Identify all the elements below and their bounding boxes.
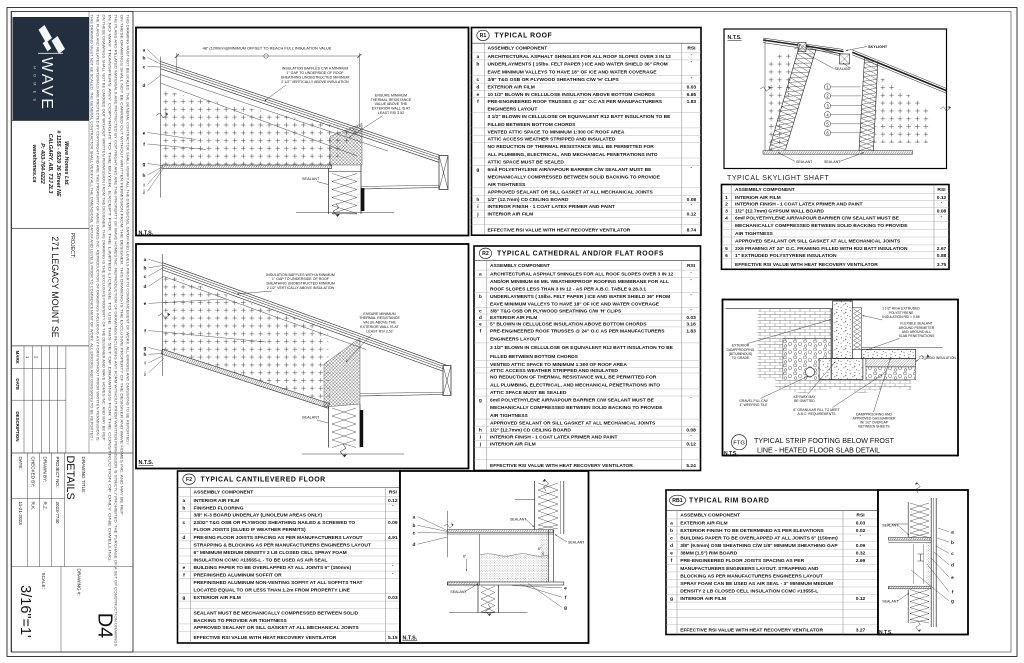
- svg-text:STRAPPING & BLOCKING AS PER MA: STRAPPING & BLOCKING AS PER MANUFACTURER…: [194, 542, 371, 548]
- svg-text:b: b: [143, 55, 146, 61]
- svg-text:MECHANICALLY COMPRESSED BETWEE: MECHANICALLY COMPRESSED BETWEEN SOLID BA…: [488, 174, 661, 180]
- svg-text:e: e: [951, 576, 954, 581]
- svg-text:c: c: [477, 78, 480, 83]
- svg-text:0.12: 0.12: [388, 498, 398, 504]
- svg-text:b: b: [144, 266, 147, 272]
- svg-text:EFFECTIVE RSI VALUE WITH HEAT: EFFECTIVE RSI VALUE WITH HEAT RECOVERY V…: [490, 463, 633, 469]
- svg-text:VALUE ABOVE THE: VALUE ABOVE THE: [375, 102, 408, 106]
- svg-text:SEALANT: SEALANT: [882, 600, 899, 604]
- svg-text:1/2" (12.7mm) CD CEILING BOARD: 1/2" (12.7mm) CD CEILING BOARD: [490, 427, 571, 433]
- svg-text:RSI: RSI: [687, 263, 696, 269]
- svg-text:VENTED ATTIC SPACE TO MINIMUM: VENTED ATTIC SPACE TO MINIMUM 1:300 OF R…: [490, 362, 627, 368]
- svg-text:d: d: [413, 542, 416, 548]
- svg-text:Wave Homes Ltd.: Wave Homes Ltd.: [63, 141, 69, 186]
- svg-text:IN NO WAY TRANSFERS ANY COPYRI: IN NO WAY TRANSFERS ANY COPYRIGHT TO THE…: [108, 15, 112, 563]
- svg-text:BUILDING PAPER TO BE OVERLAPPE: BUILDING PAPER TO BE OVERLAPPED AT ALL J…: [194, 565, 352, 571]
- svg-text:e: e: [143, 131, 146, 136]
- svg-text:0.09: 0.09: [856, 543, 866, 549]
- svg-text:j: j: [143, 371, 145, 377]
- svg-text:3/8" K-3 BOARD UNDERLAY (LINOL: 3/8" K-3 BOARD UNDERLAY (LINOLEUM AREAS …: [194, 513, 323, 519]
- svg-text:APPROVED SEALANT OR SILL GASKE: APPROVED SEALANT OR SILL GASKET AT ALL M…: [488, 189, 654, 195]
- svg-text:EXTERIOR FINISH TO BE DETERMIN: EXTERIOR FINISH TO BE DETERMINED AS PER …: [680, 528, 824, 534]
- svg-text:2: 2: [725, 202, 728, 208]
- svg-text:2.69: 2.69: [856, 558, 866, 564]
- svg-text:e: e: [477, 93, 480, 98]
- svg-text:PRE-ENGINEERED ROOF TRUSSES @: PRE-ENGINEERED ROOF TRUSSES @ 24" O.C AS…: [490, 329, 665, 335]
- svg-text:a: a: [479, 273, 482, 278]
- svg-text:DATE: DATE: [15, 378, 20, 390]
- svg-text:6: 6: [725, 253, 728, 259]
- svg-text:INTERIOR FINISH - 1 COAT LATEX: INTERIOR FINISH - 1 COAT LATEX PRIMER AN…: [735, 202, 863, 208]
- svg-text:c: c: [144, 275, 147, 280]
- svg-text:P: 403-764-0222: P: 403-764-0222: [39, 143, 45, 183]
- svg-text:g: g: [670, 597, 673, 602]
- svg-text:0.88: 0.88: [937, 253, 947, 259]
- svg-text:b: b: [182, 505, 185, 511]
- svg-text:PRE-ENGINEERED ROOF TRUSSES @: PRE-ENGINEERED ROOF TRUSSES @ 24" O.C AS…: [488, 99, 663, 105]
- svg-text:EXTERIOR AIR FILM: EXTERIOR AIR FILM: [488, 85, 535, 91]
- svg-text:g: g: [182, 596, 185, 601]
- svg-text:0.12: 0.12: [856, 596, 866, 602]
- svg-text:THERMAL RESISTANCE: THERMAL RESISTANCE: [359, 316, 400, 320]
- svg-text:j: j: [142, 189, 144, 195]
- svg-text:SKYLIGHT: SKYLIGHT: [868, 45, 888, 49]
- svg-text:wavehomes.ca: wavehomes.ca: [31, 144, 37, 182]
- svg-text:FILLED BETWEEN BOTTOM CHORDS: FILLED BETWEEN BOTTOM CHORDS: [490, 354, 579, 360]
- svg-text:MANUFACTURERS ENGINEERS LAYOUT: MANUFACTURERS ENGINEERS LAYOUT. STRAPPIN…: [680, 566, 819, 572]
- svg-text:DETAILS: DETAILS: [64, 456, 76, 500]
- svg-text:N.T.S.: N.T.S.: [724, 451, 738, 457]
- svg-text:DRAWN BY:: DRAWN BY:: [43, 457, 48, 483]
- svg-text:1.83: 1.83: [686, 329, 696, 335]
- svg-text:EFFECTIVE RSI VALUE WITH HEAT: EFFECTIVE RSI VALUE WITH HEAT RECOVERY V…: [680, 627, 823, 633]
- svg-text:SEALANT: SEALANT: [796, 160, 813, 164]
- svg-text:a: a: [670, 521, 673, 526]
- svg-text:N.T.S.: N.T.S.: [728, 35, 743, 41]
- svg-text:DRAWING TITLE:: DRAWING TITLE:: [81, 457, 86, 494]
- svg-text:i: i: [144, 361, 145, 367]
- svg-text:a: a: [477, 55, 480, 60]
- svg-text:4" WEEPING TILE: 4" WEEPING TILE: [739, 403, 768, 407]
- svg-text:5" BLOWN IN CELLULOSE INSULATI: 5" BLOWN IN CELLULOSE INSULATION ABOVE B…: [490, 321, 647, 327]
- svg-text:RSI: RSI: [687, 46, 696, 52]
- svg-text:INTERIOR FINISH - 1 COAT LATEX: INTERIOR FINISH - 1 COAT LATEX PRIMER AN…: [490, 435, 618, 441]
- svg-text:1" EXTRUDED POLYSTYRENE INSULA: 1" EXTRUDED POLYSTYRENE INSULATION: [735, 253, 837, 259]
- svg-text:DRAWING #:: DRAWING #:: [77, 569, 82, 596]
- svg-text:FINISHED FLOORING: FINISHED FLOORING: [194, 505, 244, 511]
- svg-text:1.83: 1.83: [687, 99, 697, 105]
- svg-text:3 1/2" BLOWN IN CELLULOSE OR E: 3 1/2" BLOWN IN CELLULOSE OR EQUIVALENT …: [488, 114, 672, 120]
- svg-text:INSULATION BAFFLES WITH A MINI: INSULATION BAFFLES WITH A MINIMUM: [266, 273, 335, 277]
- svg-text:6mil POLYETHYLENE AIR/VAPOUR B: 6mil POLYETHYLENE AIR/VAPOUR BARRIER C/W…: [735, 216, 900, 222]
- svg-text:RSI: RSI: [937, 187, 946, 193]
- svg-text:BE OMITTED: BE OMITTED: [794, 399, 815, 403]
- svg-text:R.Z.: R.Z.: [43, 502, 48, 511]
- svg-text:WAVE: WAVE: [38, 57, 55, 111]
- svg-text:EAVE MINIMUM VALLEYS TO HAVE 1: EAVE MINIMUM VALLEYS TO HAVE 18" OF ICE …: [490, 302, 660, 308]
- svg-text:a: a: [144, 258, 147, 263]
- svg-text:A.B.C. REQUIREMENTS: A.B.C. REQUIREMENTS: [797, 412, 836, 416]
- svg-text:LEAST RSI 3.52: LEAST RSI 3.52: [378, 111, 404, 115]
- svg-text:SEALANT: SEALANT: [450, 590, 467, 594]
- svg-text:THIS DRAWING MUST NOT BE SCALE: THIS DRAWING MUST NOT BE SCALED. THE GEN…: [90, 15, 94, 441]
- svg-text:3/16"=1': 3/16"=1': [17, 585, 33, 638]
- svg-text:PREFINISHED ALUMINUM SOFFIT OR: PREFINISHED ALUMINUM SOFFIT OR: [194, 573, 283, 579]
- svg-text:INTERIOR AIR FILM: INTERIOR AIR FILM: [735, 195, 781, 201]
- svg-text:SHEATHING UNOBSTRUCTED MINIMUM: SHEATHING UNOBSTRUCTED MINIMUM: [281, 75, 350, 79]
- svg-text:2" RIGID INSULATION: 2" RIGID INSULATION: [922, 356, 957, 360]
- svg-text:EAVE MINIMUM VALLEYS TO HAVE 1: EAVE MINIMUM VALLEYS TO HAVE 18" OF ICE …: [488, 69, 658, 75]
- svg-text:2 1/2" VERTICALLY ABOVE INSULA: 2 1/2" VERTICALLY ABOVE INSULATION: [267, 286, 335, 290]
- svg-text:THIS DRAWING MUST NOT BE SCALE: THIS DRAWING MUST NOT BE SCALED. THE GEN…: [126, 15, 130, 445]
- svg-text:ASSEMBLY COMPONENT: ASSEMBLY COMPONENT: [680, 513, 740, 519]
- svg-text:INTERIOR AIR FILM: INTERIOR AIR FILM: [488, 212, 534, 218]
- svg-text:N.T.S.: N.T.S.: [879, 630, 893, 636]
- svg-text:SEALANT: SEALANT: [302, 416, 320, 420]
- svg-text:6mil POLYETHYLENE AIR/VAPOUR B: 6mil POLYETHYLENE AIR/VAPOUR BARRIER C/W…: [488, 167, 653, 173]
- svg-text:MECHANICALLY COMPRESSED BETWEE: MECHANICALLY COMPRESSED BETWEEN SOLID BA…: [490, 405, 663, 411]
- svg-text:SEALANT MUST BE MECHANICALLY C: SEALANT MUST BE MECHANICALLY COMPRESSED …: [194, 610, 359, 616]
- svg-text:TO GRADE: TO GRADE: [732, 356, 750, 360]
- svg-text:23/32" T&G OSB OR PLYWOOD SHEA: 23/32" T&G OSB OR PLYWOOD SHEATHING NAIL…: [194, 520, 356, 526]
- svg-text:0.12: 0.12: [687, 212, 697, 218]
- svg-text:EXTERIOR WALL IS AT: EXTERIOR WALL IS AT: [360, 325, 399, 329]
- svg-text:EXTERIOR AIR FILM: EXTERIOR AIR FILM: [680, 520, 727, 526]
- svg-text:TYPICAL ROOF: TYPICAL ROOF: [495, 33, 553, 40]
- svg-text:4: 4: [725, 216, 728, 222]
- svg-text:b: b: [413, 523, 416, 529]
- svg-text:RSI: RSI: [856, 513, 865, 519]
- svg-text:EFFECTIVE RSI VALUE WITH HEAT: EFFECTIVE RSI VALUE WITH HEAT RECOVERY V…: [194, 635, 337, 641]
- svg-text:c: c: [670, 537, 673, 542]
- svg-text:g: g: [476, 168, 479, 173]
- svg-text:ALL PLUMBING, ELECTRICAL, AND: ALL PLUMBING, ELECTRICAL, AND MECHANICAL…: [490, 383, 660, 389]
- svg-text:EFFECTIVE RSI VALUE WITH HEAT: EFFECTIVE RSI VALUE WITH HEAT RECOVERY V…: [735, 262, 878, 268]
- svg-text:ATTIC ACCESS WEATHER STRIPPED: ATTIC ACCESS WEATHER STRIPPED AND INSULA…: [488, 137, 616, 143]
- svg-text:10 1/2" BLOWN IN CELLULOSE INS: 10 1/2" BLOWN IN CELLULOSE INSULATION AB…: [488, 92, 656, 98]
- svg-text:NO REDUCTION OF THERMAL RESIST: NO REDUCTION OF THERMAL RESISTANCE WILL …: [488, 144, 655, 150]
- svg-text:b: b: [670, 528, 673, 534]
- svg-text:6" MINIMUM MEDIUM DENSITY 2 LB: 6" MINIMUM MEDIUM DENSITY 2 LB CLOSED CE…: [194, 550, 347, 556]
- svg-text:b: b: [479, 294, 482, 300]
- svg-text:RB1: RB1: [672, 498, 682, 504]
- svg-text:TYPICAL CANTILEVERED FLOOR: TYPICAL CANTILEVERED FLOOR: [201, 476, 326, 483]
- svg-text:0.03: 0.03: [856, 520, 866, 526]
- svg-text:c: c: [413, 531, 416, 536]
- svg-text:38MM (1.5") RIM BOARD: 38MM (1.5") RIM BOARD: [680, 551, 737, 557]
- svg-text:a: a: [183, 499, 186, 504]
- svg-text:SEALANT: SEALANT: [302, 177, 320, 181]
- svg-text:g: g: [479, 399, 482, 404]
- svg-text:INTERIOR AIR FILM: INTERIOR AIR FILM: [490, 442, 536, 448]
- svg-text:N.T.S.: N.T.S.: [139, 460, 154, 466]
- svg-text:0.08: 0.08: [687, 197, 697, 203]
- svg-text:2 1/2" VERTICALLY ABOVE INSULA: 2 1/2" VERTICALLY ABOVE INSULATION: [281, 80, 349, 84]
- svg-text:FTG: FTG: [733, 440, 745, 446]
- svg-text:d: d: [479, 315, 482, 321]
- svg-text:b: b: [476, 62, 479, 68]
- svg-text:F2: F2: [186, 477, 192, 483]
- svg-text:0.03: 0.03: [686, 315, 696, 321]
- svg-text:AIR TIGHTNESS: AIR TIGHTNESS: [488, 182, 527, 188]
- svg-text:UNDERLAYMENTS ( 15lbs. FELT PA: UNDERLAYMENTS ( 15lbs. FELT PAPER ) ICE …: [490, 294, 670, 300]
- svg-text:PREFINISHED ALUMINUM NON-VENTI: PREFINISHED ALUMINUM NON-VENTING SOFFIT …: [194, 580, 363, 586]
- svg-text:c: c: [183, 521, 186, 526]
- svg-text:d: d: [951, 563, 954, 569]
- svg-text:DESCRIPTION: DESCRIPTION: [15, 411, 20, 441]
- svg-text:ROOF SLOPES LESS THAN 3 IN 12: ROOF SLOPES LESS THAN 3 IN 12 - AS PER A…: [490, 287, 646, 293]
- svg-text:e: e: [564, 587, 567, 592]
- svg-text:RSI: RSI: [389, 490, 398, 496]
- svg-text:ENGINEERS LAYOUT: ENGINEERS LAYOUT: [488, 107, 538, 113]
- svg-text:LINE - HEATED FLOOR SLAB DETAI: LINE - HEATED FLOOR SLAB DETAIL: [757, 447, 880, 455]
- svg-text:CALGARY, AB, T3J 2L3: CALGARY, AB, T3J 2L3: [47, 134, 53, 194]
- svg-text:0.03: 0.03: [388, 595, 398, 601]
- svg-text:INTERIOR FINISH - 1 COAT LATEX: INTERIOR FINISH - 1 COAT LATEX PRIMER AN…: [488, 204, 616, 210]
- svg-text:LEAST RSI 3.52: LEAST RSI 3.52: [366, 329, 392, 333]
- svg-text:1: 1: [725, 195, 728, 201]
- svg-text:0.12: 0.12: [686, 442, 696, 448]
- svg-text:TYPICAL SKYLIGHT SHAFT: TYPICAL SKYLIGHT SHAFT: [727, 175, 830, 182]
- svg-text:ASSEMBLY COMPONENT: ASSEMBLY COMPONENT: [194, 490, 254, 496]
- svg-text:b: b: [951, 540, 954, 546]
- svg-text:2X6 FRAMING AT 24" O.C. FRAMIN: 2X6 FRAMING AT 24" O.C. FRAMING FILLED W…: [735, 246, 908, 252]
- svg-text:AIR TIGHTNESS: AIR TIGHTNESS: [490, 413, 529, 419]
- svg-text:ASSEMBLY COMPONENT: ASSEMBLY COMPONENT: [488, 46, 548, 52]
- svg-text:ENSURE MINIMUM: ENSURE MINIMUM: [375, 93, 407, 97]
- svg-text:0.08: 0.08: [686, 427, 696, 433]
- svg-text:3.75: 3.75: [937, 262, 947, 268]
- svg-text:6.65: 6.65: [687, 92, 697, 98]
- svg-text:VALUE ABOVE THE: VALUE ABOVE THE: [363, 321, 396, 325]
- svg-text:FLOOR JOISTS (GLUED IF WEATHER: FLOOR JOISTS (GLUED IF WEATHER PERMITS): [194, 527, 306, 533]
- svg-text:N.T.S.: N.T.S.: [139, 231, 154, 237]
- svg-text:PRE-ENGINEERED FLOOR JOISTS SP: PRE-ENGINEERED FLOOR JOISTS SPACING AS P…: [680, 558, 804, 564]
- svg-text:EXTERIOR AIR FILM: EXTERIOR AIR FILM: [490, 315, 537, 321]
- svg-text:NO REDUCTION OF THERMAL RESIST: NO REDUCTION OF THERMAL RESISTANCE WILL …: [490, 375, 657, 381]
- svg-text:D4: D4: [94, 613, 116, 639]
- svg-text:APPROVED SEALANT OR SILL GASKE: APPROVED SEALANT OR SILL GASKET AT ALL M…: [194, 625, 360, 631]
- svg-text:d: d: [182, 535, 185, 541]
- svg-text:1" GAP TO UNDERSIDE OF ROOF: 1" GAP TO UNDERSIDE OF ROOF: [286, 71, 344, 75]
- svg-text:INTERIOR AIR FILM: INTERIOR AIR FILM: [194, 498, 240, 504]
- svg-text:g: g: [564, 606, 567, 611]
- svg-text:THERMAL RESISTANCE: THERMAL RESISTANCE: [371, 98, 412, 102]
- svg-text:3.16: 3.16: [686, 321, 696, 327]
- svg-text:3/8" (9.5mm) OSB SHEATHING C/W: 3/8" (9.5mm) OSB SHEATHING C/W 1/8" MINI…: [680, 543, 838, 549]
- svg-text:SPRAY FOAM CAN BE USED AS AIR: SPRAY FOAM CAN BE USED AS AIR SEAL - 3" …: [680, 581, 833, 587]
- svg-text:1/2" (12.7mm) CD CEILING BOARD: 1/2" (12.7mm) CD CEILING BOARD: [488, 197, 569, 203]
- svg-text:c: c: [479, 310, 482, 315]
- svg-text:g: g: [951, 600, 954, 605]
- svg-text:INSULATION BAFFLES C/W A MINIM: INSULATION BAFFLES C/W A MINIMUM: [282, 67, 348, 71]
- svg-text:THE PLANS AND RELATED MATERIAL: THE PLANS AND RELATED MATERIALS ARE PROT…: [96, 15, 100, 441]
- svg-text:2023-7740: 2023-7740: [55, 502, 60, 524]
- svg-text:ATTIC ACCESS WEATHER STRIPPED: ATTIC ACCESS WEATHER STRIPPED AND INSULA…: [490, 368, 618, 374]
- svg-text:AIR TIGHTNESS: AIR TIGHTNESS: [735, 231, 774, 237]
- svg-text:INSULATION CCMC #13555-L - TO: INSULATION CCMC #13555-L - TO BE USED AS…: [194, 557, 328, 563]
- svg-text:SEALANT: SEALANT: [824, 160, 841, 164]
- svg-text:MECHANICALLY COMPRESSED BETWEE: MECHANICALLY COMPRESSED BETWEEN SOLID BA…: [735, 223, 908, 229]
- svg-text:ASSEMBLY COMPONENT: ASSEMBLY COMPONENT: [490, 263, 550, 269]
- svg-text:PROJECT NO.:: PROJECT NO.:: [55, 457, 60, 489]
- svg-text:5: 5: [725, 246, 728, 252]
- svg-text:SEALANT: SEALANT: [568, 541, 585, 545]
- svg-text:INTERIOR AIR FILM: INTERIOR AIR FILM: [680, 596, 726, 602]
- svg-text:0.32: 0.32: [856, 551, 866, 557]
- svg-text:i: i: [143, 182, 144, 188]
- svg-text:h: h: [476, 197, 479, 203]
- svg-text:DENSITY 2 LB CLOSED CELL INSUL: DENSITY 2 LB CLOSED CELL INSULATION CCMC…: [680, 589, 818, 595]
- svg-text:ARCHITECTURAL ASPHALT SHINGLES: ARCHITECTURAL ASPHALT SHINGLES FOR ALL R…: [490, 272, 674, 278]
- svg-text:6mil POLYETHYLENE AIR/VAPOUR B: 6mil POLYETHYLENE AIR/VAPOUR BARRIER C/W…: [490, 398, 655, 404]
- svg-text:e: e: [144, 302, 147, 307]
- svg-text:3.27: 3.27: [856, 627, 866, 633]
- svg-text:0.09: 0.09: [388, 520, 398, 526]
- svg-text:TYPICAL CATHEDRAL AND/OR FLAT: TYPICAL CATHEDRAL AND/OR FLAT ROOFS: [497, 251, 664, 258]
- svg-text:LOCATED EQUAL TO OR LESS THAN: LOCATED EQUAL TO OR LESS THAN 1.2m FROM …: [194, 588, 351, 594]
- svg-text:h: h: [143, 173, 146, 179]
- svg-text:INSULATION RSI = 0.88: INSULATION RSI = 0.88: [882, 315, 919, 319]
- svg-text:8.74: 8.74: [687, 228, 697, 234]
- svg-text:PRE-ENG FLOOR JOISTS SPACING A: PRE-ENG FLOOR JOISTS SPACING AS PER MANU…: [194, 535, 363, 541]
- svg-text:h: h: [144, 352, 147, 358]
- svg-text:H O M E S: H O M E S: [33, 66, 38, 103]
- svg-text:EFFECTIVE RSI VALUE WITH HEAT: EFFECTIVE RSI VALUE WITH HEAT RECOVERY V…: [488, 228, 631, 234]
- svg-text:APPROVED SEALANT OR SILL GASKE: APPROVED SEALANT OR SILL GASKET AT ALL M…: [490, 420, 656, 426]
- svg-text:c: c: [951, 552, 954, 557]
- svg-text:0.02: 0.02: [856, 528, 866, 534]
- svg-text:AND/OR MINIMUM 60 MIL WEATHERP: AND/OR MINIMUM 60 MIL WEATHERPROOF ROOFI…: [490, 279, 669, 285]
- svg-text:d: d: [476, 85, 479, 91]
- svg-text:5.24: 5.24: [686, 463, 696, 469]
- svg-text:2.67: 2.67: [937, 246, 947, 252]
- svg-text:3/8" T&G OSB OR PLYWOOD SHEATH: 3/8" T&G OSB OR PLYWOOD SHEATHING C/W 'H…: [490, 309, 622, 315]
- svg-text:ALL PLUMBING, ELECTRICAL, AND: ALL PLUMBING, ELECTRICAL, AND MECHANICAL…: [488, 152, 658, 158]
- svg-text:BACKING TO PROVIDE AIR TIGHTNE: BACKING TO PROVIDE AIR TIGHTNESS: [194, 618, 288, 624]
- svg-text:ENSURE MINIMUM: ENSURE MINIMUM: [363, 312, 395, 316]
- svg-text:4.91: 4.91: [388, 535, 398, 541]
- svg-text:BETWEEN SHEETS: BETWEEN SHEETS: [858, 425, 890, 429]
- svg-text:N.T.S.: N.T.S.: [403, 636, 418, 642]
- svg-text:a: a: [143, 48, 146, 53]
- svg-text:ASSEMBLY COMPONENT: ASSEMBLY COMPONENT: [735, 187, 795, 193]
- svg-text:EXTERIOR WALL IS AT: EXTERIOR WALL IS AT: [372, 107, 411, 111]
- svg-text:BUILDING PAPER TO BE OVERLAPPE: BUILDING PAPER TO BE OVERLAPPED AT ALL J…: [680, 536, 838, 542]
- svg-text:271 LEGACY MOUNT SE: 271 LEGACY MOUNT SE: [50, 236, 60, 337]
- svg-text:a: a: [413, 515, 416, 520]
- svg-text:ARCHITECTURAL ASPHALT SHINGLES: ARCHITECTURAL ASPHALT SHINGLES FOR ALL R…: [488, 54, 672, 60]
- svg-text:3/8" T&G OSB OR PLYWOOD SHEATH: 3/8" T&G OSB OR PLYWOOD SHEATHING C/W 'H…: [488, 77, 620, 83]
- svg-text:SHEATHING UNOBSTRUCTED MINIMUM: SHEATHING UNOBSTRUCTED MINIMUM: [266, 282, 335, 286]
- svg-text:11-21-2023: 11-21-2023: [18, 502, 23, 526]
- svg-text:TYPICAL STRIP FOOTING BELOW FR: TYPICAL STRIP FOOTING BELOW FROST: [754, 437, 895, 445]
- svg-text:VENTED ATTIC SPACE TO MINIMUM: VENTED ATTIC SPACE TO MINIMUM 1:300 OF R…: [488, 129, 625, 135]
- svg-text:3: 3: [725, 209, 728, 215]
- svg-text:THE PLANS AND RELATED MATERIAL: THE PLANS AND RELATED MATERIALS ARE PROT…: [114, 15, 118, 648]
- svg-text:R1: R1: [480, 33, 487, 39]
- svg-text:FILLED BETWEEN BOTTOM CHORDS: FILLED BETWEEN BOTTOM CHORDS: [488, 122, 577, 128]
- svg-text:5.15: 5.15: [388, 635, 398, 641]
- svg-text:g: g: [144, 346, 147, 351]
- svg-text:ON THESE DRAWINGS SHALL NOT BE: ON THESE DRAWINGS SHALL NOT BE CARRIED O…: [120, 15, 124, 516]
- svg-text:d: d: [144, 284, 147, 290]
- svg-text:e: e: [670, 552, 673, 557]
- svg-text:h: h: [479, 427, 482, 433]
- svg-text:SCALE:: SCALE:: [41, 573, 46, 589]
- svg-text:e: e: [183, 566, 186, 571]
- svg-text:SEALANT: SEALANT: [882, 524, 899, 528]
- svg-text:EXTERIOR AIR FILM: EXTERIOR AIR FILM: [194, 595, 241, 601]
- svg-text:MARK: MARK: [15, 351, 20, 365]
- svg-text:UNDERLAYMENTS ( 15lbs. FELT PA: UNDERLAYMENTS ( 15lbs. FELT PAPER ) ICE …: [488, 62, 668, 68]
- svg-text:0.03: 0.03: [687, 85, 697, 91]
- svg-text:a: a: [951, 531, 954, 536]
- svg-text:BLOCKING AS PER MANUFACTURERS: BLOCKING AS PER MANUFACTURERS ENGINEERS …: [680, 573, 823, 579]
- svg-text:SLAB PENETRATIONS: SLAB PENETRATIONS: [899, 334, 935, 338]
- svg-text:1/2" (12.7mm) GYPSUM WALL BOAR: 1/2" (12.7mm) GYPSUM WALL BOARD: [735, 209, 824, 215]
- svg-text:3 1/2" BLOWN IN CELLULOSE OR E: 3 1/2" BLOWN IN CELLULOSE OR EQUIVALENT …: [490, 345, 674, 351]
- svg-text:ON THESE DRAWINGS SHALL NOT BE: ON THESE DRAWINGS SHALL NOT BE CARRIED O…: [102, 15, 106, 441]
- svg-text:g: g: [143, 162, 146, 167]
- svg-text:APPROVED SEALANT OR SILL GASKE: APPROVED SEALANT OR SILL GASKET AT ALL M…: [735, 239, 901, 245]
- svg-text:R2: R2: [482, 251, 489, 257]
- svg-text:ATTIC SPACE MUST BE SEALED: ATTIC SPACE MUST BE SEALED: [488, 159, 565, 165]
- svg-text:CHECKED BY:: CHECKED BY:: [31, 457, 36, 488]
- svg-text:R.K.: R.K.: [31, 502, 36, 511]
- svg-text:e: e: [479, 322, 482, 327]
- svg-text:PROJECT:: PROJECT:: [69, 233, 75, 259]
- svg-text:c: c: [143, 65, 146, 70]
- svg-text:ATTIC SPACE MUST BE SEALED: ATTIC SPACE MUST BE SEALED: [490, 390, 567, 396]
- svg-text:DATE:: DATE:: [18, 457, 23, 470]
- svg-text:SEALANT: SEALANT: [510, 518, 527, 522]
- svg-text:TYPICAL RIM BOARD: TYPICAL RIM BOARD: [689, 498, 769, 505]
- svg-text:d: d: [143, 83, 146, 89]
- svg-text:48" (1200mm)(MINIMUM OFFSET TO: 48" (1200mm)(MINIMUM OFFSET TO REACH FUL…: [203, 46, 332, 51]
- svg-text:d: d: [670, 543, 673, 549]
- svg-text:# 1155 - 6520 36 Street NE: # 1155 - 6520 36 Street NE: [55, 130, 61, 197]
- svg-text:ENGINEERS LAYOUT: ENGINEERS LAYOUT: [490, 337, 540, 343]
- svg-text:1" GAP TO UNDERSIDE OF ROOF: 1" GAP TO UNDERSIDE OF ROOF: [272, 277, 330, 281]
